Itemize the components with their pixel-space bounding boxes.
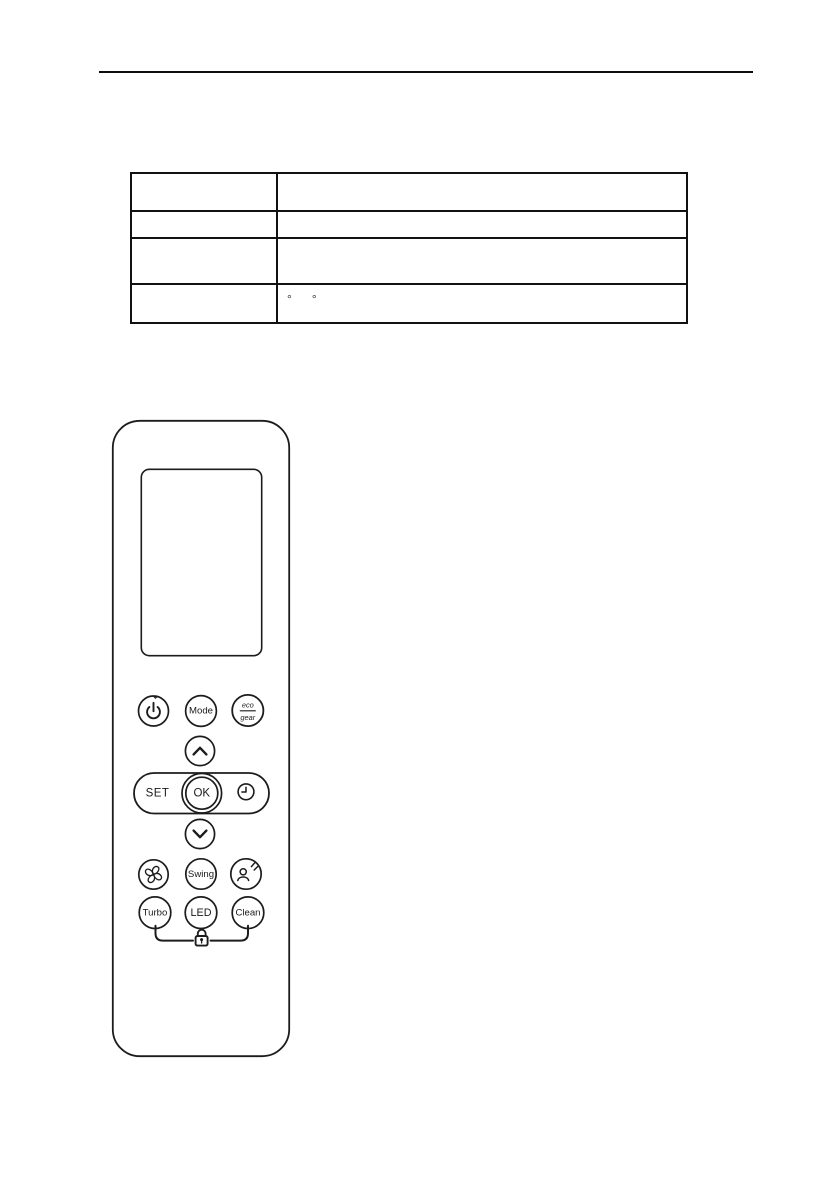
remote-control-figure: Mode eco gear SET OK — [104, 412, 298, 1065]
remote-display — [141, 469, 261, 655]
ecogear-top-label: eco — [242, 701, 254, 710]
degree-mark: ° — [287, 293, 292, 305]
set-button-label: SET — [146, 788, 170, 800]
table-cell — [132, 212, 278, 240]
table-cell — [278, 212, 686, 240]
manual-page: °° Mode — [0, 0, 840, 1190]
ok-button-label: OK — [193, 788, 210, 800]
fan-icon — [145, 866, 161, 882]
degree-mark: ° — [312, 293, 317, 305]
table-cell: °° — [278, 285, 686, 323]
table-cell — [278, 239, 686, 285]
table-cell — [132, 174, 278, 212]
header-rule — [99, 71, 753, 73]
table-cell — [132, 285, 278, 323]
mode-button-label: Mode — [189, 706, 213, 717]
clean-button-label: Clean — [235, 908, 260, 919]
swing-button-label: Swing — [188, 869, 214, 880]
led-button-label: LED — [190, 907, 211, 919]
table-cell — [278, 174, 686, 212]
turbo-button-label: Turbo — [143, 908, 168, 919]
table-cell — [132, 239, 278, 285]
spec-table: °° — [130, 172, 688, 324]
ecogear-bottom-label: gear — [240, 713, 255, 722]
